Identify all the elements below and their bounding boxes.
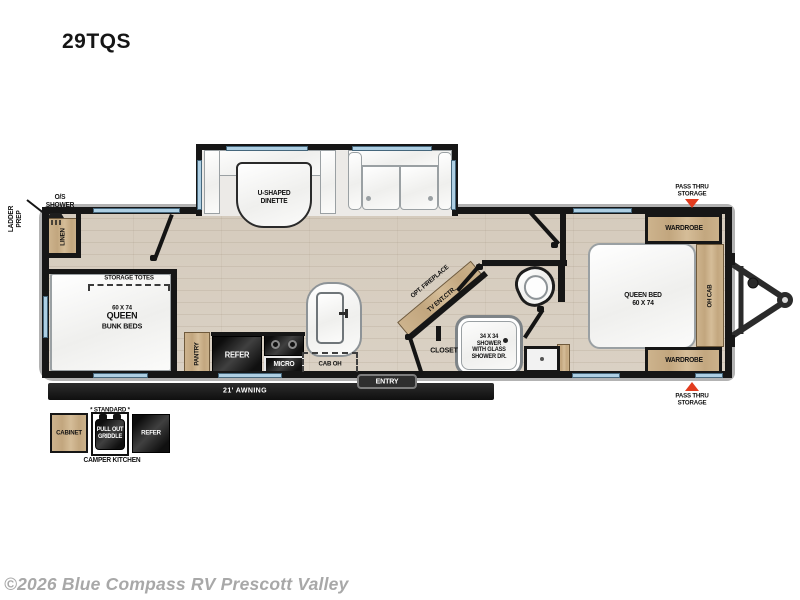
wall [436, 326, 441, 341]
window [93, 373, 148, 378]
micro-label: MICRO [273, 361, 294, 369]
camper-kitchen-caption: CAMPER KITCHEN [84, 457, 141, 465]
wall [482, 260, 567, 266]
sofa-armrest [348, 152, 362, 210]
window [573, 208, 632, 213]
shower-label: 34 X 34 SHOWER WITH GLASS SHOWER DR. [472, 334, 507, 360]
window [352, 146, 432, 151]
queen-bed-label: QUEEN BED 60 X 74 [624, 292, 661, 308]
wall [560, 213, 566, 264]
burner-icon [271, 340, 280, 349]
wall [725, 207, 732, 378]
floorplan-title: 29TQS [62, 30, 131, 54]
storage-totes-outline [88, 284, 170, 291]
cab-oh-label: CAB OH [319, 360, 342, 367]
griddle-handle [99, 414, 107, 420]
arrow-up-icon [685, 382, 699, 391]
window [93, 208, 180, 213]
pass-thru-top-label: PASS THRU STORAGE [675, 184, 708, 199]
oh-cab-label: OH CAB [706, 285, 713, 308]
burner-icon [288, 340, 297, 349]
storage-totes-label: STORAGE TOTES [104, 274, 154, 281]
camper-refer-label: REFER [141, 429, 161, 436]
window [226, 146, 308, 151]
bunk-sub-label: BUNK BEDS [102, 323, 142, 332]
camper-cabinet-label: CABINET [56, 429, 82, 436]
os-shower-label: O/S SHOWER [46, 194, 74, 210]
linen-label: LINEN [59, 228, 66, 245]
dinette-bench [204, 150, 220, 214]
sofa-cushion [400, 166, 438, 210]
dinette-bench [320, 150, 336, 214]
awning-bar [48, 383, 494, 400]
kitchen-sink [316, 292, 344, 344]
wardrobe-label: WARDROBE [665, 225, 703, 233]
outside-shower-icon [48, 212, 68, 227]
wall [48, 269, 174, 274]
floorplan-page: 29TQS U-SHAPED DINETTE LINEN STORAGE [0, 0, 800, 600]
pass-thru-bottom-label: PASS THRU STORAGE [675, 393, 708, 408]
ladder-prep-label: LADDER PREP [8, 206, 24, 232]
dealer-watermark: ©2026 Blue Compass RV Prescott Valley [4, 574, 349, 595]
arrow-down-icon [685, 199, 699, 208]
wall [42, 207, 49, 378]
trailer-hitch [726, 252, 798, 348]
wall [211, 332, 305, 336]
window [43, 296, 48, 338]
door-handle [537, 306, 544, 312]
pantry-label: PANTRY [193, 342, 200, 365]
refer-label: REFER [225, 350, 250, 359]
sofa-backrest [348, 150, 452, 166]
shower-drain-icon [503, 338, 508, 343]
window [572, 373, 620, 378]
sofa-cushion [362, 166, 400, 210]
dinette-label: U-SHAPED DINETTE [258, 190, 291, 206]
door-handle [150, 255, 157, 261]
closet-label: CLOSET [430, 347, 457, 356]
door-handle [476, 264, 483, 270]
faucet-icon [345, 309, 348, 318]
entry-label: ENTRY [376, 378, 399, 387]
griddle-label: PULL OUT GRIDDLE [97, 427, 124, 441]
wall [48, 253, 81, 258]
wardrobe-label: WARDROBE [665, 357, 703, 365]
wall [171, 269, 177, 376]
door-handle [551, 242, 558, 248]
recliner-button [366, 196, 371, 201]
wall [558, 264, 565, 302]
wall [76, 212, 81, 258]
recliner-button [428, 196, 433, 201]
window [451, 160, 456, 210]
standard-label: * STANDARD * [90, 406, 130, 413]
window [197, 160, 202, 210]
awning-label: 21' AWNING [223, 387, 267, 396]
vanity-sink-icon [540, 357, 544, 361]
griddle-handle [113, 414, 121, 420]
window [218, 373, 282, 378]
range-cooktop [264, 334, 304, 356]
door-handle [405, 334, 412, 340]
sofa-armrest [438, 152, 452, 210]
window [695, 373, 723, 378]
